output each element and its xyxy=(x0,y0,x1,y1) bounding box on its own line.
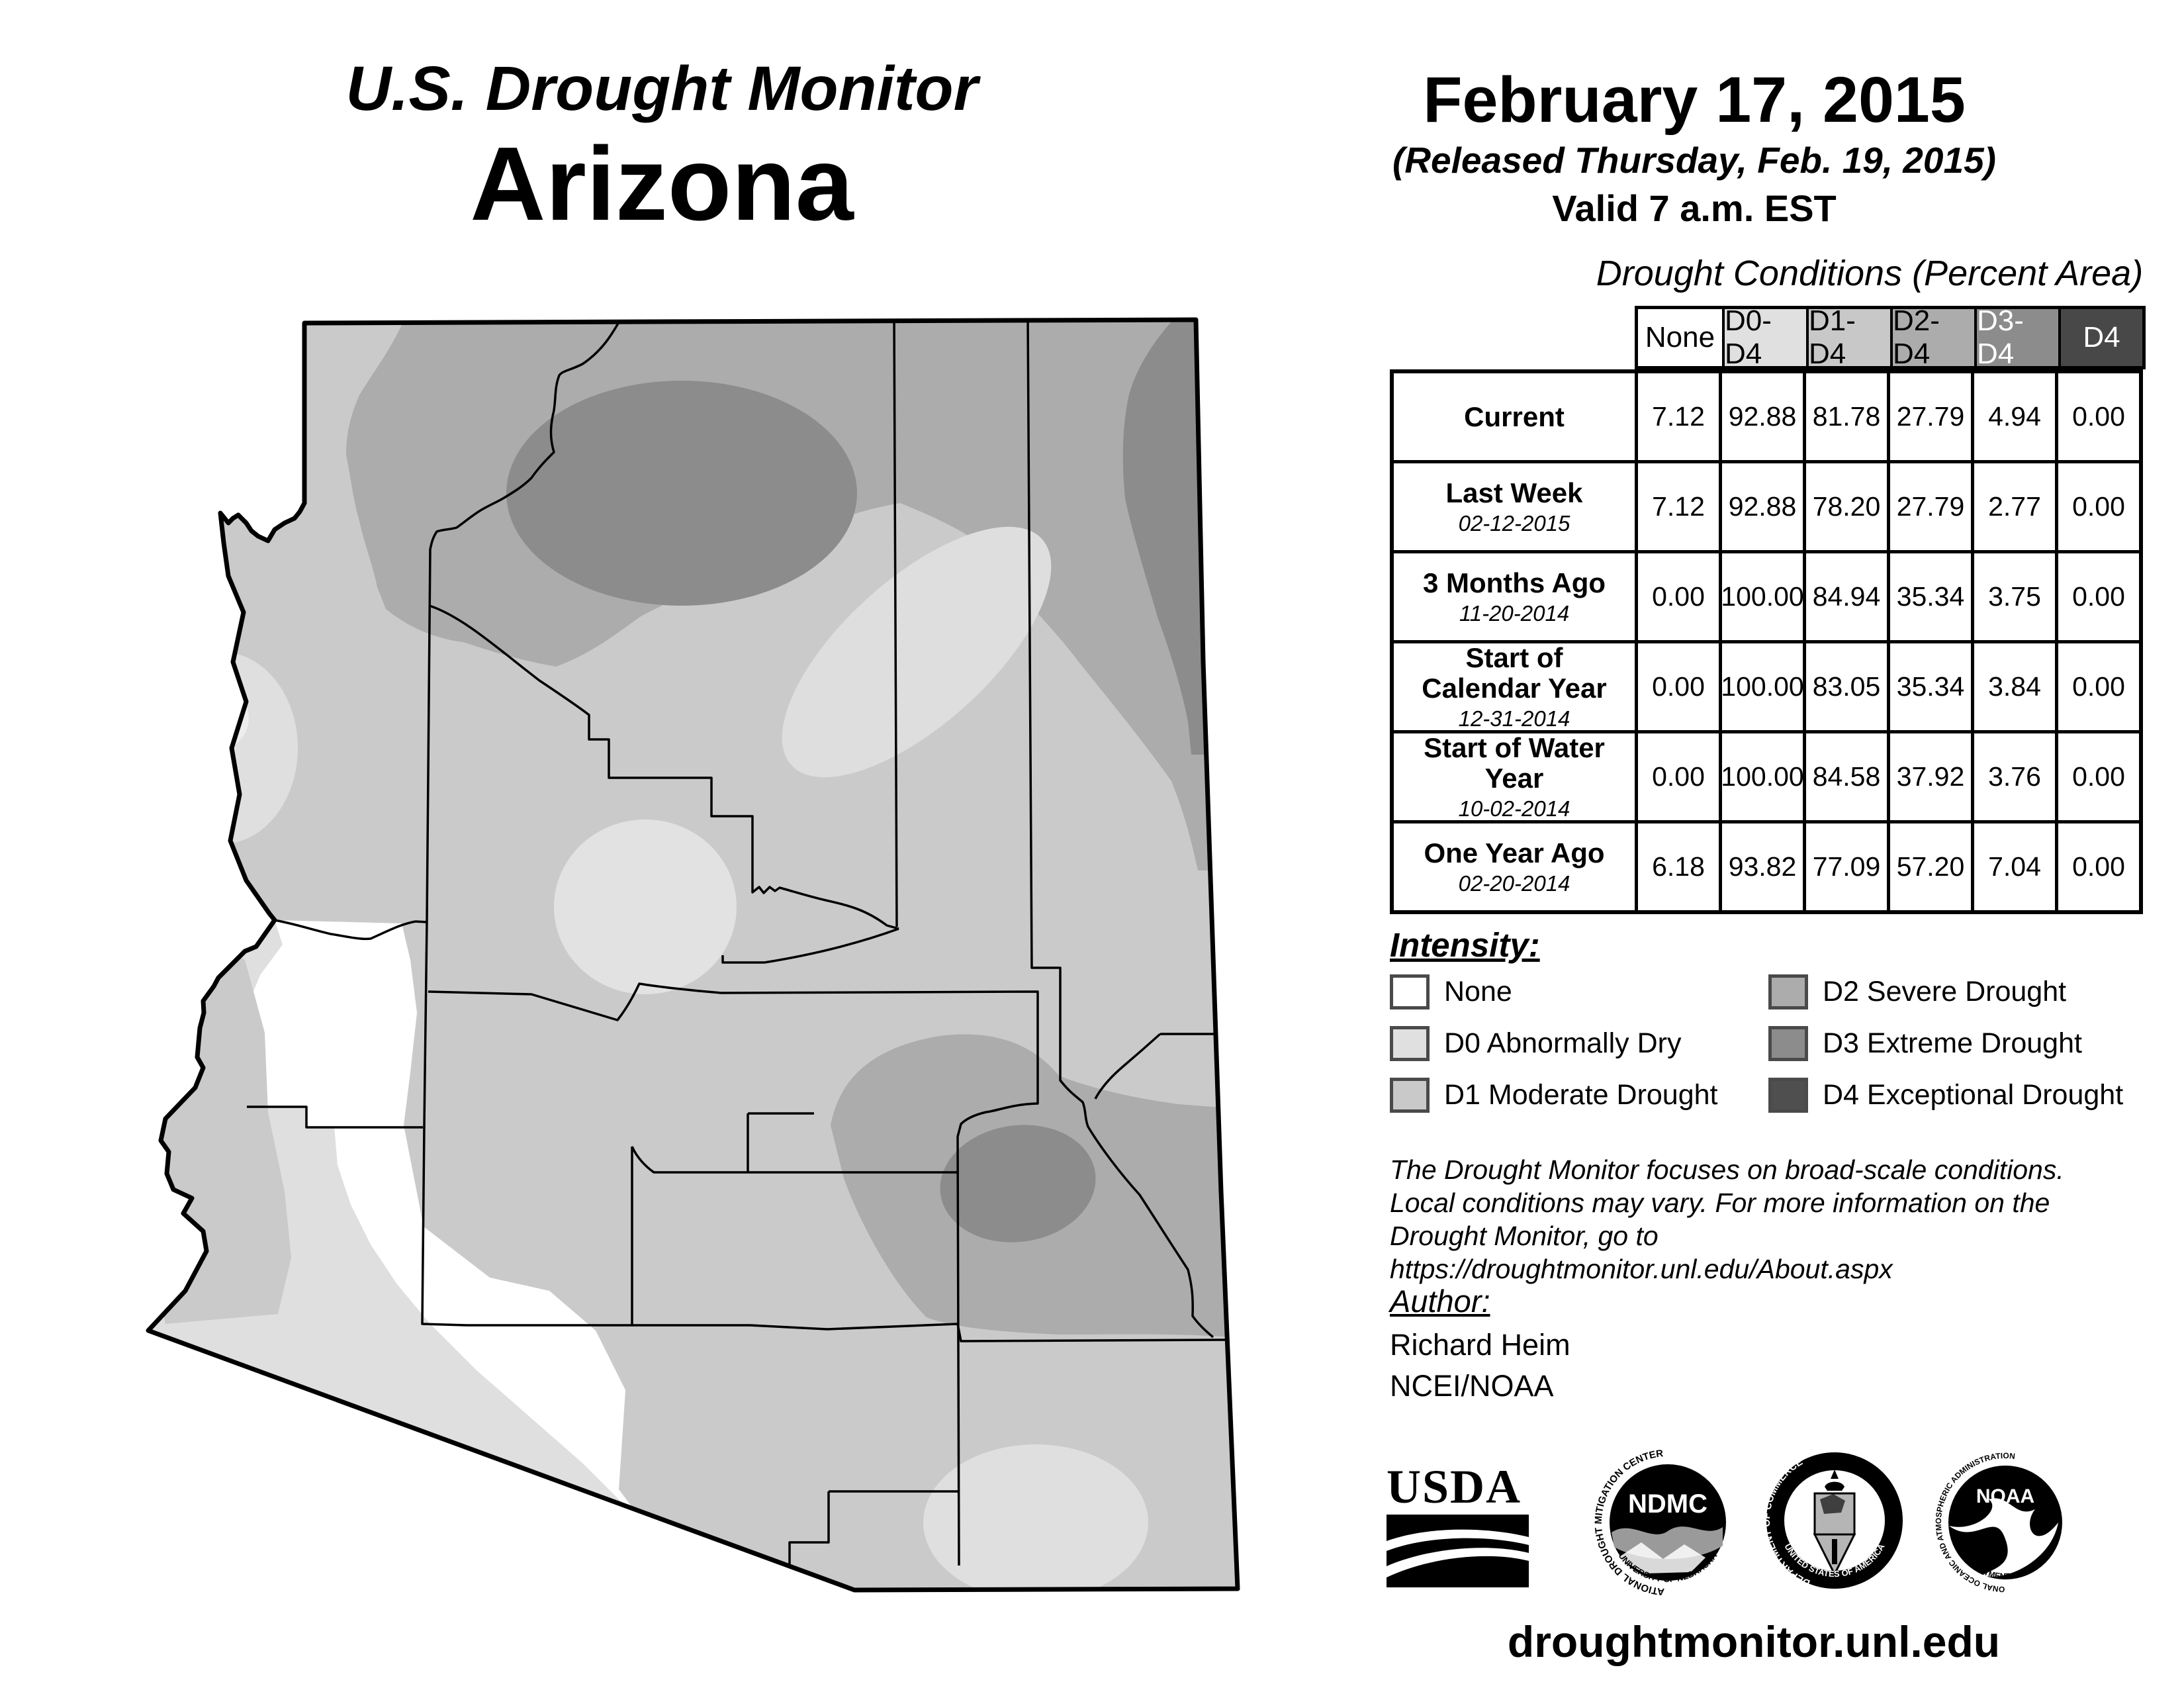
cell-value: 83.05 xyxy=(1803,643,1887,730)
swatch-none xyxy=(1390,974,1430,1009)
department-of-commerce-seal: DEPARTMENT OF COMMERCE UNITED STATES OF … xyxy=(1764,1450,1906,1595)
legend-label: D4 Exceptional Drought xyxy=(1823,1079,2123,1111)
cell-value: 77.09 xyxy=(1803,823,1887,910)
column-header-none: None xyxy=(1638,309,1722,366)
table-row-start-calendar-year: Start of Calendar Year 12-31-2014 0.00 1… xyxy=(1394,640,2139,730)
map-fill-light-west-core xyxy=(172,684,249,753)
report-title: U.S. Drought Monitor xyxy=(165,53,1158,125)
table-title: Drought Conditions (Percent Area) xyxy=(1588,253,2151,294)
cell-value: 92.88 xyxy=(1719,373,1803,460)
swatch-d3 xyxy=(1768,1026,1808,1061)
column-header-d4: D4 xyxy=(2058,309,2142,366)
row-label: Start of Calendar Year xyxy=(1405,643,1623,704)
author-org: NCEI/NOAA xyxy=(1390,1369,1554,1403)
row-date: 10-02-2014 xyxy=(1459,796,1570,821)
legend-label: None xyxy=(1444,976,1512,1008)
author-heading: Author: xyxy=(1390,1283,1490,1319)
cell-value: 100.00 xyxy=(1719,733,1803,820)
ndmc-logo: NATIONAL DROUGHT MITIGATION CENTER UNIVE… xyxy=(1592,1446,1744,1599)
cell-value: 93.82 xyxy=(1719,823,1803,910)
table-row-start-water-year: Start of Water Year 10-02-2014 0.00 100.… xyxy=(1394,730,2139,820)
map-fill-d3-north-blob xyxy=(506,381,857,606)
state-title: Arizona xyxy=(165,124,1158,244)
table-header-row: None D0-D4 D1-D4 D2-D4 D3-D4 D4 xyxy=(1635,306,2146,369)
noaa-logo: NATIONAL OCEANIC AND ATMOSPHERIC ADMINIS… xyxy=(1929,1446,2081,1599)
cell-value: 35.34 xyxy=(1887,643,1971,730)
usda-logo: USDA xyxy=(1387,1460,1529,1589)
column-header-d1-d4: D1-D4 xyxy=(1806,309,1890,366)
column-header-d3-d4: D3-D4 xyxy=(1974,309,2058,366)
cell-value: 3.75 xyxy=(1971,553,2055,640)
map-fill-d0-center-patch xyxy=(554,820,737,994)
cell-value: 3.84 xyxy=(1971,643,2055,730)
disclaimer-line: Local conditions may vary. For more info… xyxy=(1390,1186,2158,1219)
cell-value: 0.00 xyxy=(2055,463,2139,550)
cell-value: 84.94 xyxy=(1803,553,1887,640)
column-header-d0-d4: D0-D4 xyxy=(1722,309,1806,366)
legend-item-d2: D2 Severe Drought xyxy=(1768,974,2066,1009)
legend-label: D1 Moderate Drought xyxy=(1444,1079,1718,1111)
row-date: 12-31-2014 xyxy=(1459,706,1570,731)
cell-value: 7.04 xyxy=(1971,823,2055,910)
drought-monitor-page: U.S. Drought Monitor Arizona February 17… xyxy=(0,0,2184,1688)
cell-value: 100.00 xyxy=(1719,643,1803,730)
valid-time: Valid 7 a.m. EST xyxy=(1343,187,2045,230)
cell-value: 92.88 xyxy=(1719,463,1803,550)
cell-value: 100.00 xyxy=(1719,553,1803,640)
legend-item-d1: D1 Moderate Drought xyxy=(1390,1078,1718,1113)
legend-item-none: None xyxy=(1390,974,1512,1009)
table-body: Current 7.12 92.88 81.78 27.79 4.94 0.00… xyxy=(1390,369,2143,914)
row-date: 02-20-2014 xyxy=(1459,871,1570,896)
cell-value: 6.18 xyxy=(1635,823,1719,910)
map-date: February 17, 2015 xyxy=(1343,63,2045,137)
cell-value: 78.20 xyxy=(1803,463,1887,550)
map-fill-d0-west-patch xyxy=(146,652,298,844)
swatch-d1 xyxy=(1390,1078,1430,1113)
intensity-heading: Intensity: xyxy=(1390,925,1540,964)
table-row-3-months-ago: 3 Months Ago 11-20-2014 0.00 100.00 84.9… xyxy=(1394,550,2139,640)
cell-value: 7.12 xyxy=(1635,463,1719,550)
usda-logo-text: USDA xyxy=(1387,1460,1529,1515)
disclaimer-line: The Drought Monitor focuses on broad-sca… xyxy=(1390,1153,2158,1186)
release-date: (Released Thursday, Feb. 19, 2015) xyxy=(1343,139,2045,181)
legend-label: D2 Severe Drought xyxy=(1823,976,2066,1008)
cell-value: 0.00 xyxy=(2055,823,2139,910)
table-row-one-year-ago: One Year Ago 02-20-2014 6.18 93.82 77.09… xyxy=(1394,820,2139,910)
cell-value: 0.00 xyxy=(1635,643,1719,730)
cell-value: 0.00 xyxy=(1635,733,1719,820)
cell-value: 0.00 xyxy=(2055,733,2139,820)
cell-value: 27.79 xyxy=(1887,373,1971,460)
noaa-logo-text: NOAA xyxy=(1976,1485,2034,1507)
row-date: 11-20-2014 xyxy=(1459,601,1569,626)
cell-value: 37.92 xyxy=(1887,733,1971,820)
legend-label: D0 Abnormally Dry xyxy=(1444,1027,1681,1060)
cell-value: 84.58 xyxy=(1803,733,1887,820)
legend-item-d3: D3 Extreme Drought xyxy=(1768,1026,2082,1061)
cell-value: 0.00 xyxy=(2055,553,2139,640)
table-row-last-week: Last Week 02-12-2015 7.12 92.88 78.20 27… xyxy=(1394,460,2139,550)
disclaimer-line: Drought Monitor, go to https://droughtmo… xyxy=(1390,1219,2158,1286)
row-label: 3 Months Ago xyxy=(1423,568,1606,598)
legend-item-d4: D4 Exceptional Drought xyxy=(1768,1078,2123,1113)
cell-value: 35.34 xyxy=(1887,553,1971,640)
cell-value: 2.77 xyxy=(1971,463,2055,550)
swatch-d2 xyxy=(1768,974,1808,1009)
row-label: Start of Water Year xyxy=(1415,733,1614,794)
ndmc-logo-text: NDMC xyxy=(1628,1489,1707,1519)
cell-value: 3.76 xyxy=(1971,733,2055,820)
usda-swoosh-icon xyxy=(1387,1515,1529,1587)
cell-value: 0.00 xyxy=(1635,553,1719,640)
cell-value: 7.12 xyxy=(1635,373,1719,460)
swatch-d4 xyxy=(1768,1078,1808,1113)
disclaimer-text: The Drought Monitor focuses on broad-sca… xyxy=(1390,1153,2158,1286)
column-header-d2-d4: D2-D4 xyxy=(1890,309,1974,366)
footer-url: droughtmonitor.unl.edu xyxy=(1423,1617,2085,1667)
table-row-current: Current 7.12 92.88 81.78 27.79 4.94 0.00 xyxy=(1394,373,2139,460)
map-fill-d0-southeast-patch xyxy=(923,1444,1148,1601)
swatch-d0 xyxy=(1390,1026,1430,1061)
cell-value: 4.94 xyxy=(1971,373,2055,460)
row-label: Last Week xyxy=(1446,478,1583,508)
row-label: Current xyxy=(1464,402,1565,432)
cell-value: 0.00 xyxy=(2055,643,2139,730)
row-label: One Year Ago xyxy=(1424,838,1604,868)
cell-value: 27.79 xyxy=(1887,463,1971,550)
cell-value: 0.00 xyxy=(2055,373,2139,460)
row-date: 02-12-2015 xyxy=(1459,511,1570,536)
cell-value: 81.78 xyxy=(1803,373,1887,460)
cell-value: 57.20 xyxy=(1887,823,1971,910)
legend-item-d0: D0 Abnormally Dry xyxy=(1390,1026,1681,1061)
legend-label: D3 Extreme Drought xyxy=(1823,1027,2082,1060)
author-name: Richard Heim xyxy=(1390,1328,1570,1362)
